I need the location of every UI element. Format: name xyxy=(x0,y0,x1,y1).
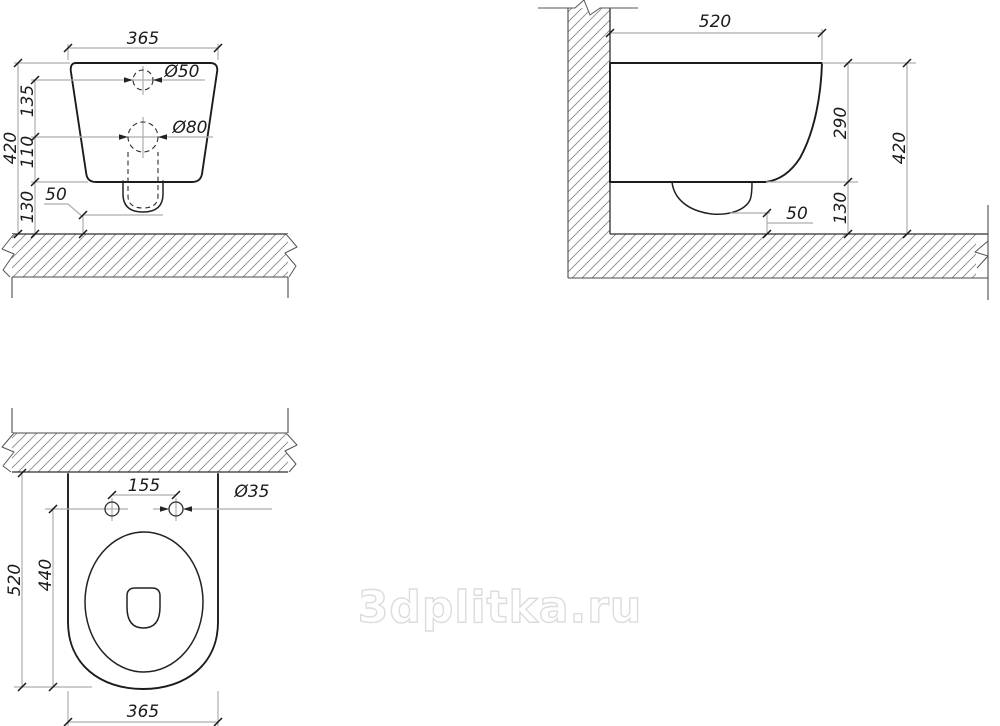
dim-side-depth: 520 xyxy=(699,12,731,32)
side-drain-outline xyxy=(672,182,752,214)
dim-outlet-diameter: Ø80 xyxy=(171,118,207,138)
dim-side-gap: 130 xyxy=(831,192,851,224)
dim-top-width: 365 xyxy=(127,702,159,722)
dim-inlet-diameter: Ø50 xyxy=(163,62,199,82)
dim-top-length: 520 xyxy=(5,564,25,596)
dim-front-seg-top: 135 xyxy=(18,85,38,117)
dim-front-seg-mid: 110 xyxy=(18,136,38,168)
dim-top-hole-spacing: 155 xyxy=(128,476,160,496)
top-wall-section xyxy=(0,408,301,472)
watermark: 3dplitka.ru xyxy=(358,582,643,633)
floor-break-symbol xyxy=(975,241,988,268)
dim-top-hole-diameter: Ø35 xyxy=(233,482,269,502)
side-view: 520 290 420 130 50 xyxy=(538,0,988,300)
dim-front-seg-bottom: 130 xyxy=(18,191,38,223)
dim-front-width: 365 xyxy=(127,29,159,49)
technical-drawing-page: 365 Ø50 Ø80 420 135 110 130 50 52 xyxy=(0,0,1000,726)
dim-side-clearance: 50 xyxy=(786,204,808,224)
front-view: 365 Ø50 Ø80 420 135 110 130 50 xyxy=(0,29,301,298)
front-floor-section xyxy=(0,234,301,298)
dim-front-clearance: 50 xyxy=(45,185,67,205)
dim-top-inner-length: 440 xyxy=(36,559,56,591)
toilet-dimension-drawing: 365 Ø50 Ø80 420 135 110 130 50 52 xyxy=(0,0,1000,726)
dim-side-height: 420 xyxy=(890,132,910,164)
top-view: 155 Ø35 520 440 365 xyxy=(0,408,301,726)
dim-side-bowl-height: 290 xyxy=(831,107,851,139)
drain-pipe xyxy=(123,181,163,212)
